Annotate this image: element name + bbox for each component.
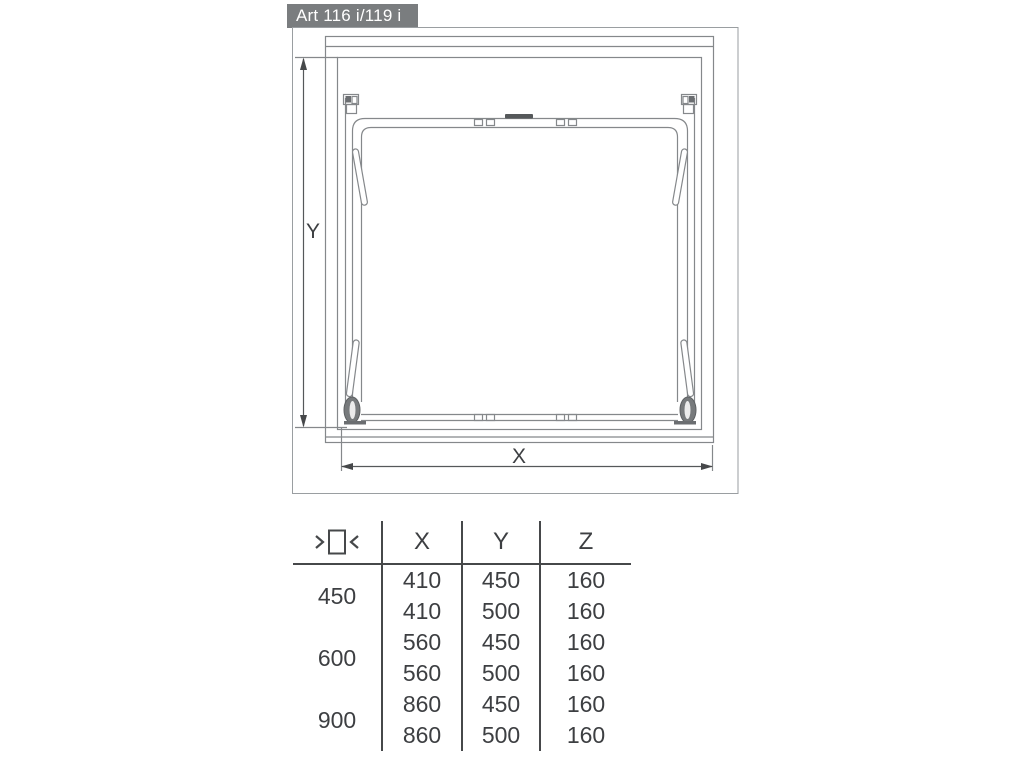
mounting-hooks bbox=[344, 95, 697, 114]
dimension-x bbox=[341, 427, 713, 471]
cell-y: 450 bbox=[461, 689, 539, 720]
cell-z: 160 bbox=[539, 565, 631, 596]
cell-z: 160 bbox=[539, 627, 631, 658]
technical-drawing bbox=[280, 0, 750, 505]
spec-table: X Y Z 450 410 450 160 410 500 160 600 56… bbox=[293, 521, 631, 751]
cell-x: 860 bbox=[381, 720, 461, 751]
group-width-600: 600 bbox=[293, 627, 381, 689]
cell-z: 160 bbox=[539, 720, 631, 751]
page: Art 116 i/119 i bbox=[0, 0, 1024, 768]
cell-y: 500 bbox=[461, 596, 539, 627]
cell-z: 160 bbox=[539, 689, 631, 720]
cell-x: 560 bbox=[381, 627, 461, 658]
cell-x: 860 bbox=[381, 689, 461, 720]
cell-x: 560 bbox=[381, 658, 461, 689]
group-width-450: 450 bbox=[293, 565, 381, 627]
cell-x: 410 bbox=[381, 565, 461, 596]
cell-z: 160 bbox=[539, 658, 631, 689]
group-width-900: 900 bbox=[293, 689, 381, 751]
col-header-z: Z bbox=[539, 521, 631, 565]
col-header-x: X bbox=[381, 521, 461, 565]
cabinet-carcass bbox=[326, 37, 714, 443]
cell-y: 450 bbox=[461, 627, 539, 658]
dimension-y-label: Y bbox=[306, 220, 320, 244]
dimension-x-label: X bbox=[512, 445, 526, 469]
inner-cabinet-width-icon bbox=[313, 526, 361, 558]
pullout-frame bbox=[346, 98, 695, 421]
inner-width-header-cell bbox=[293, 521, 381, 565]
cell-z: 160 bbox=[539, 596, 631, 627]
cell-y: 500 bbox=[461, 720, 539, 751]
cell-x: 410 bbox=[381, 596, 461, 627]
dimension-y bbox=[295, 58, 347, 428]
frame-braces bbox=[346, 148, 694, 396]
cell-y: 450 bbox=[461, 565, 539, 596]
col-header-y: Y bbox=[461, 521, 539, 565]
cell-y: 500 bbox=[461, 658, 539, 689]
